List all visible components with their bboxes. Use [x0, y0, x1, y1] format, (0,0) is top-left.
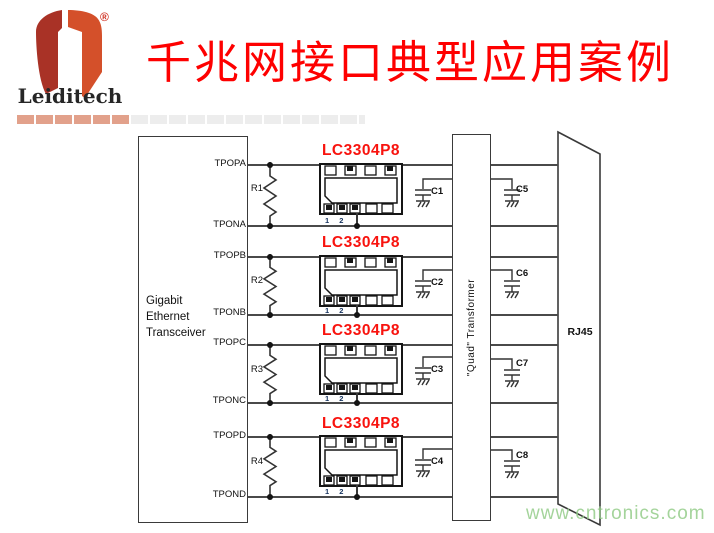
chip-b-pin-numbers: 1 2: [325, 306, 347, 315]
wire-rj45-4: [491, 314, 558, 316]
capacitor-c4: [414, 447, 452, 489]
junction-dot: [354, 400, 360, 406]
label-r3: R3: [243, 364, 263, 375]
chip-label-b: LC3304P8: [311, 234, 411, 252]
transformer-label: "Quad" Transformer: [452, 134, 491, 521]
chip-c-pin-numbers: 1 2: [325, 394, 347, 403]
chip-label-c: LC3304P8: [311, 322, 411, 340]
wire-rj45-5: [491, 344, 558, 346]
chip-footprint-b: [319, 255, 403, 307]
chip-footprint-a: [319, 163, 403, 215]
junction-dot: [267, 494, 273, 500]
label-c8: C8: [516, 450, 528, 461]
junction-dot: [354, 312, 360, 318]
wire-rj45-6: [491, 402, 558, 404]
junction-dot: [354, 494, 360, 500]
wire-rj45-7: [491, 436, 558, 438]
junction-dot: [267, 254, 273, 260]
label-c4: C4: [431, 456, 443, 467]
pin-tponc: TPONC: [186, 395, 246, 406]
resistor-r1: [258, 162, 282, 229]
junction-dot: [267, 312, 273, 318]
pin-tpond: TPOND: [186, 489, 246, 500]
wire-rj45-1: [491, 164, 558, 166]
pin-tpona: TPONA: [186, 219, 246, 230]
pin-tpopd: TPOPD: [186, 430, 246, 441]
label-c5: C5: [516, 184, 528, 195]
label-r4: R4: [243, 456, 263, 467]
chip-footprint-d: [319, 435, 403, 487]
pin-tponb: TPONB: [186, 307, 246, 318]
junction-dot: [267, 162, 273, 168]
chip-a-pin-numbers: 1 2: [325, 216, 347, 225]
watermark: www.cntronics.com: [526, 503, 706, 525]
divider-bar: [17, 115, 365, 124]
junction-dot: [354, 223, 360, 229]
junction-dot: [267, 434, 273, 440]
wire-rj45-2: [491, 225, 558, 227]
junction-dot: [267, 223, 273, 229]
junction-dot: [267, 342, 273, 348]
capacitor-c3: [414, 355, 452, 397]
chip-label-a: LC3304P8: [311, 142, 411, 160]
rj45-label: RJ45: [560, 326, 600, 338]
chip-footprint-c: [319, 343, 403, 395]
pin-tpopa: TPOPA: [186, 158, 246, 169]
label-c6: C6: [516, 268, 528, 279]
label-r1: R1: [243, 183, 263, 194]
wire-rj45-3: [491, 256, 558, 258]
chip-d-pin-numbers: 1 2: [325, 487, 347, 496]
registered-mark: ®: [100, 10, 109, 24]
label-c1: C1: [431, 186, 443, 197]
pin-tpopc: TPOPC: [186, 337, 246, 348]
pin-tpopb: TPOPB: [186, 250, 246, 261]
page-title: 千兆网接口典型应用案例: [120, 26, 700, 91]
wire-rj45-8: [491, 496, 558, 498]
label-r2: R2: [243, 275, 263, 286]
label-c2: C2: [431, 277, 443, 288]
capacitor-c2: [414, 268, 452, 310]
slide: ® Leiditech 千兆网接口典型应用案例 Gigabit Ethernet…: [0, 0, 714, 533]
capacitor-c1: [414, 177, 452, 219]
resistor-r2: [258, 254, 282, 318]
label-c7: C7: [516, 358, 528, 369]
chip-label-d: LC3304P8: [311, 415, 411, 433]
brand-name: Leiditech: [15, 84, 125, 108]
junction-dot: [267, 400, 273, 406]
label-c3: C3: [431, 364, 443, 375]
